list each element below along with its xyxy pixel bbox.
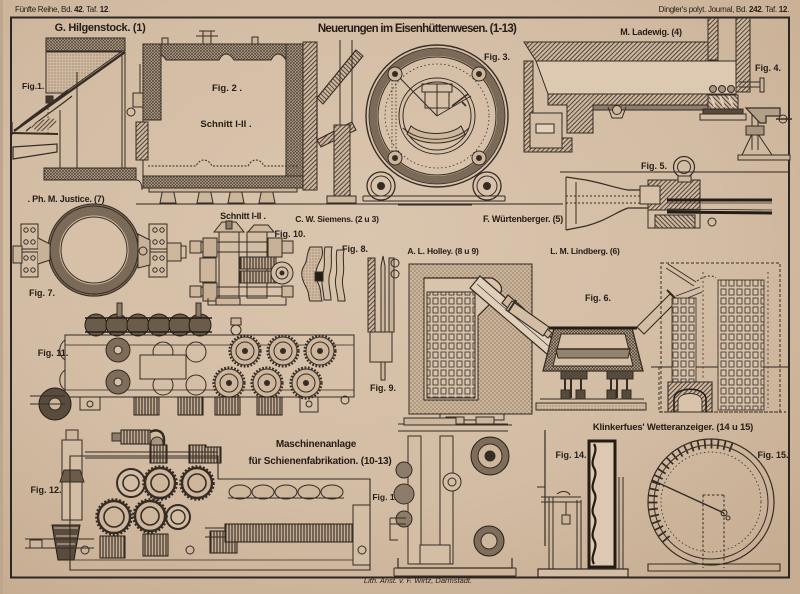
svg-text:Fig. 4.: Fig. 4.: [755, 63, 781, 73]
svg-text:Fig. 14.: Fig. 14.: [555, 450, 586, 460]
svg-text:G. Hilgenstock. (1): G. Hilgenstock. (1): [55, 22, 147, 34]
svg-text:Dingler's polyt. Journal, Bd.: Dingler's polyt. Journal, Bd. 242. Taf. …: [659, 5, 789, 14]
svg-text:Fig. 3.: Fig. 3.: [484, 52, 510, 62]
svg-text:Fig.1.: Fig.1.: [22, 81, 44, 91]
svg-text:M. Ladewig. (4): M. Ladewig. (4): [620, 27, 682, 37]
svg-text:Fig. 6.: Fig. 6.: [585, 293, 611, 303]
svg-text:Fig. 15.: Fig. 15.: [757, 450, 788, 460]
svg-text:Klinkerfues' Wetteranzeiger. (: Klinkerfues' Wetteranzeiger. (14 u 15): [593, 422, 753, 433]
svg-text:Neuerungen im Eisenhüttenwesen: Neuerungen im Eisenhüttenwesen. (1-13): [318, 23, 517, 35]
svg-text:Fig. 5.: Fig. 5.: [641, 161, 667, 171]
svg-text:Fig. 2 .: Fig. 2 .: [212, 83, 242, 94]
svg-text:Fig. 7.: Fig. 7.: [29, 288, 55, 298]
svg-text:A. L. Holley. (8 u 9): A. L. Holley. (8 u 9): [407, 246, 479, 256]
svg-text:für Schienenfabrikation. (10-1: für Schienenfabrikation. (10-13): [248, 456, 391, 467]
svg-text:Fünfte Reihe, Bd. 42. Taf. 12.: Fünfte Reihe, Bd. 42. Taf. 12.: [15, 5, 110, 14]
svg-text:L. M. Lindberg. (6): L. M. Lindberg. (6): [550, 246, 620, 256]
svg-text:F. Würtenberger. (5): F. Würtenberger. (5): [483, 214, 563, 224]
svg-text:Schnitt I-II .: Schnitt I-II .: [220, 211, 266, 221]
svg-text:Fig. 9.: Fig. 9.: [370, 383, 396, 393]
svg-text:Lith. Anst. v. F. Wirtz, Darms: Lith. Anst. v. F. Wirtz, Darmstadt.: [364, 576, 472, 585]
svg-text:. Ph. M. Justice. (7): . Ph. M. Justice. (7): [28, 194, 105, 204]
svg-text:C. W. Siemens. (2 u 3): C. W. Siemens. (2 u 3): [295, 214, 379, 224]
svg-text:Fig. 8.: Fig. 8.: [342, 244, 368, 254]
svg-text:Fig. 12.: Fig. 12.: [30, 485, 61, 495]
svg-text:Fig. 11.: Fig. 11.: [38, 348, 69, 358]
svg-text:Schnitt I-II .: Schnitt I-II .: [200, 119, 251, 130]
svg-text:Maschinenanlage: Maschinenanlage: [276, 439, 357, 450]
